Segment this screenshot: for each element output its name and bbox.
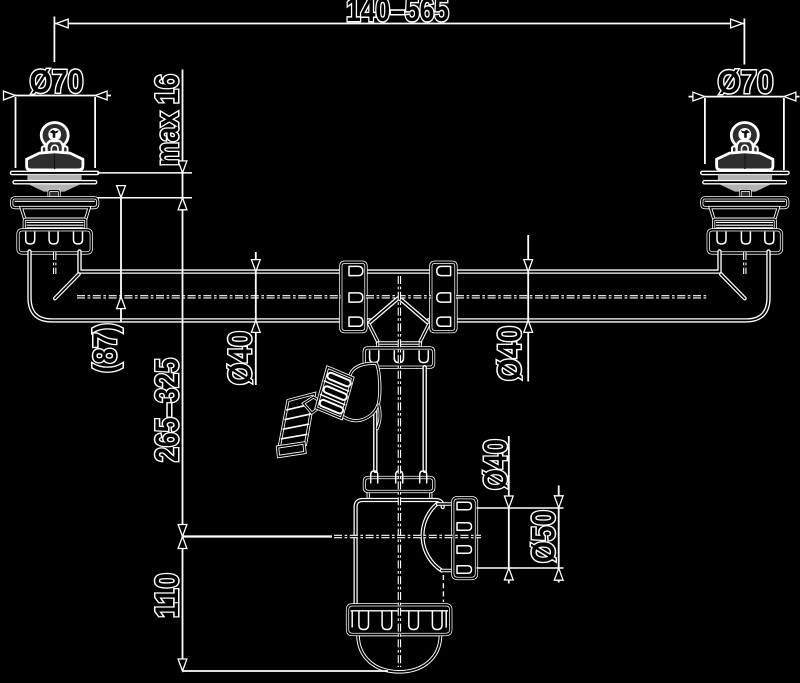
svg-text:Ø50: Ø50	[526, 510, 562, 563]
svg-text:Ø40: Ø40	[222, 331, 258, 385]
svg-text:Ø70: Ø70	[718, 64, 774, 100]
svg-text:max 16: max 16	[149, 74, 185, 166]
svg-text:(87): (87)	[87, 323, 123, 373]
svg-text:Ø40: Ø40	[492, 326, 528, 381]
svg-text:265–325: 265–325	[149, 358, 185, 462]
svg-text:Ø70: Ø70	[30, 64, 84, 100]
svg-text:140–565: 140–565	[346, 0, 449, 28]
svg-text:110: 110	[149, 573, 185, 618]
svg-text:Ø40: Ø40	[478, 439, 514, 490]
